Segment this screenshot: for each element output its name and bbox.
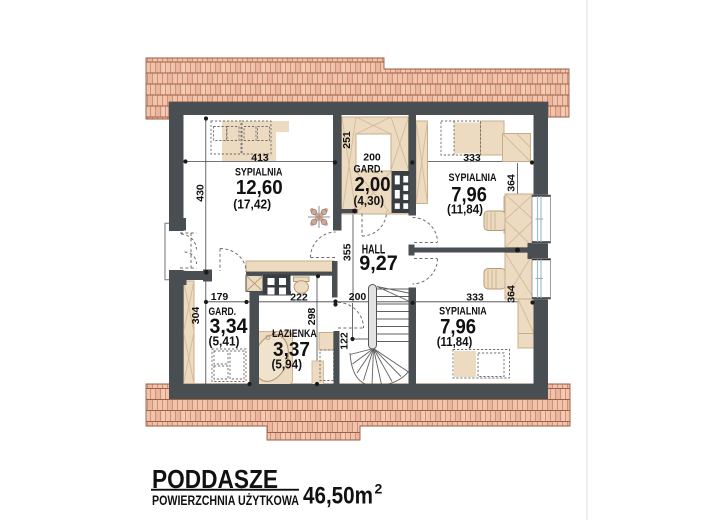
svg-text:122: 122 [338, 332, 350, 350]
svg-text:(17,42): (17,42) [233, 196, 271, 211]
svg-text:9,27: 9,27 [359, 251, 398, 275]
svg-text:2: 2 [375, 481, 383, 497]
svg-text:304: 304 [190, 307, 202, 325]
svg-text:(5,41): (5,41) [209, 334, 240, 349]
svg-text:364: 364 [506, 174, 518, 192]
svg-text:(11,84): (11,84) [447, 202, 483, 216]
svg-text:222: 222 [290, 292, 308, 304]
svg-text:SYPIALNIA: SYPIALNIA [449, 172, 497, 184]
svg-text:POWIERZCHNIA UŻYTKOWA: POWIERZCHNIA UŻYTKOWA [152, 493, 299, 508]
svg-text:413: 413 [251, 152, 269, 164]
svg-text:(4,30): (4,30) [354, 193, 385, 208]
svg-text:364: 364 [506, 285, 518, 303]
svg-text:333: 333 [466, 292, 484, 304]
svg-text:(5,94): (5,94) [272, 356, 303, 371]
svg-text:333: 333 [463, 152, 481, 164]
svg-text:46,50m: 46,50m [303, 483, 373, 510]
svg-text:430: 430 [195, 184, 207, 202]
svg-text:179: 179 [211, 291, 229, 303]
svg-text:355: 355 [341, 243, 353, 261]
svg-text:251: 251 [341, 131, 353, 149]
svg-text:200: 200 [363, 152, 381, 164]
svg-text:200: 200 [349, 291, 367, 303]
svg-text:298: 298 [306, 308, 318, 326]
svg-text:(11,84): (11,84) [437, 335, 473, 349]
